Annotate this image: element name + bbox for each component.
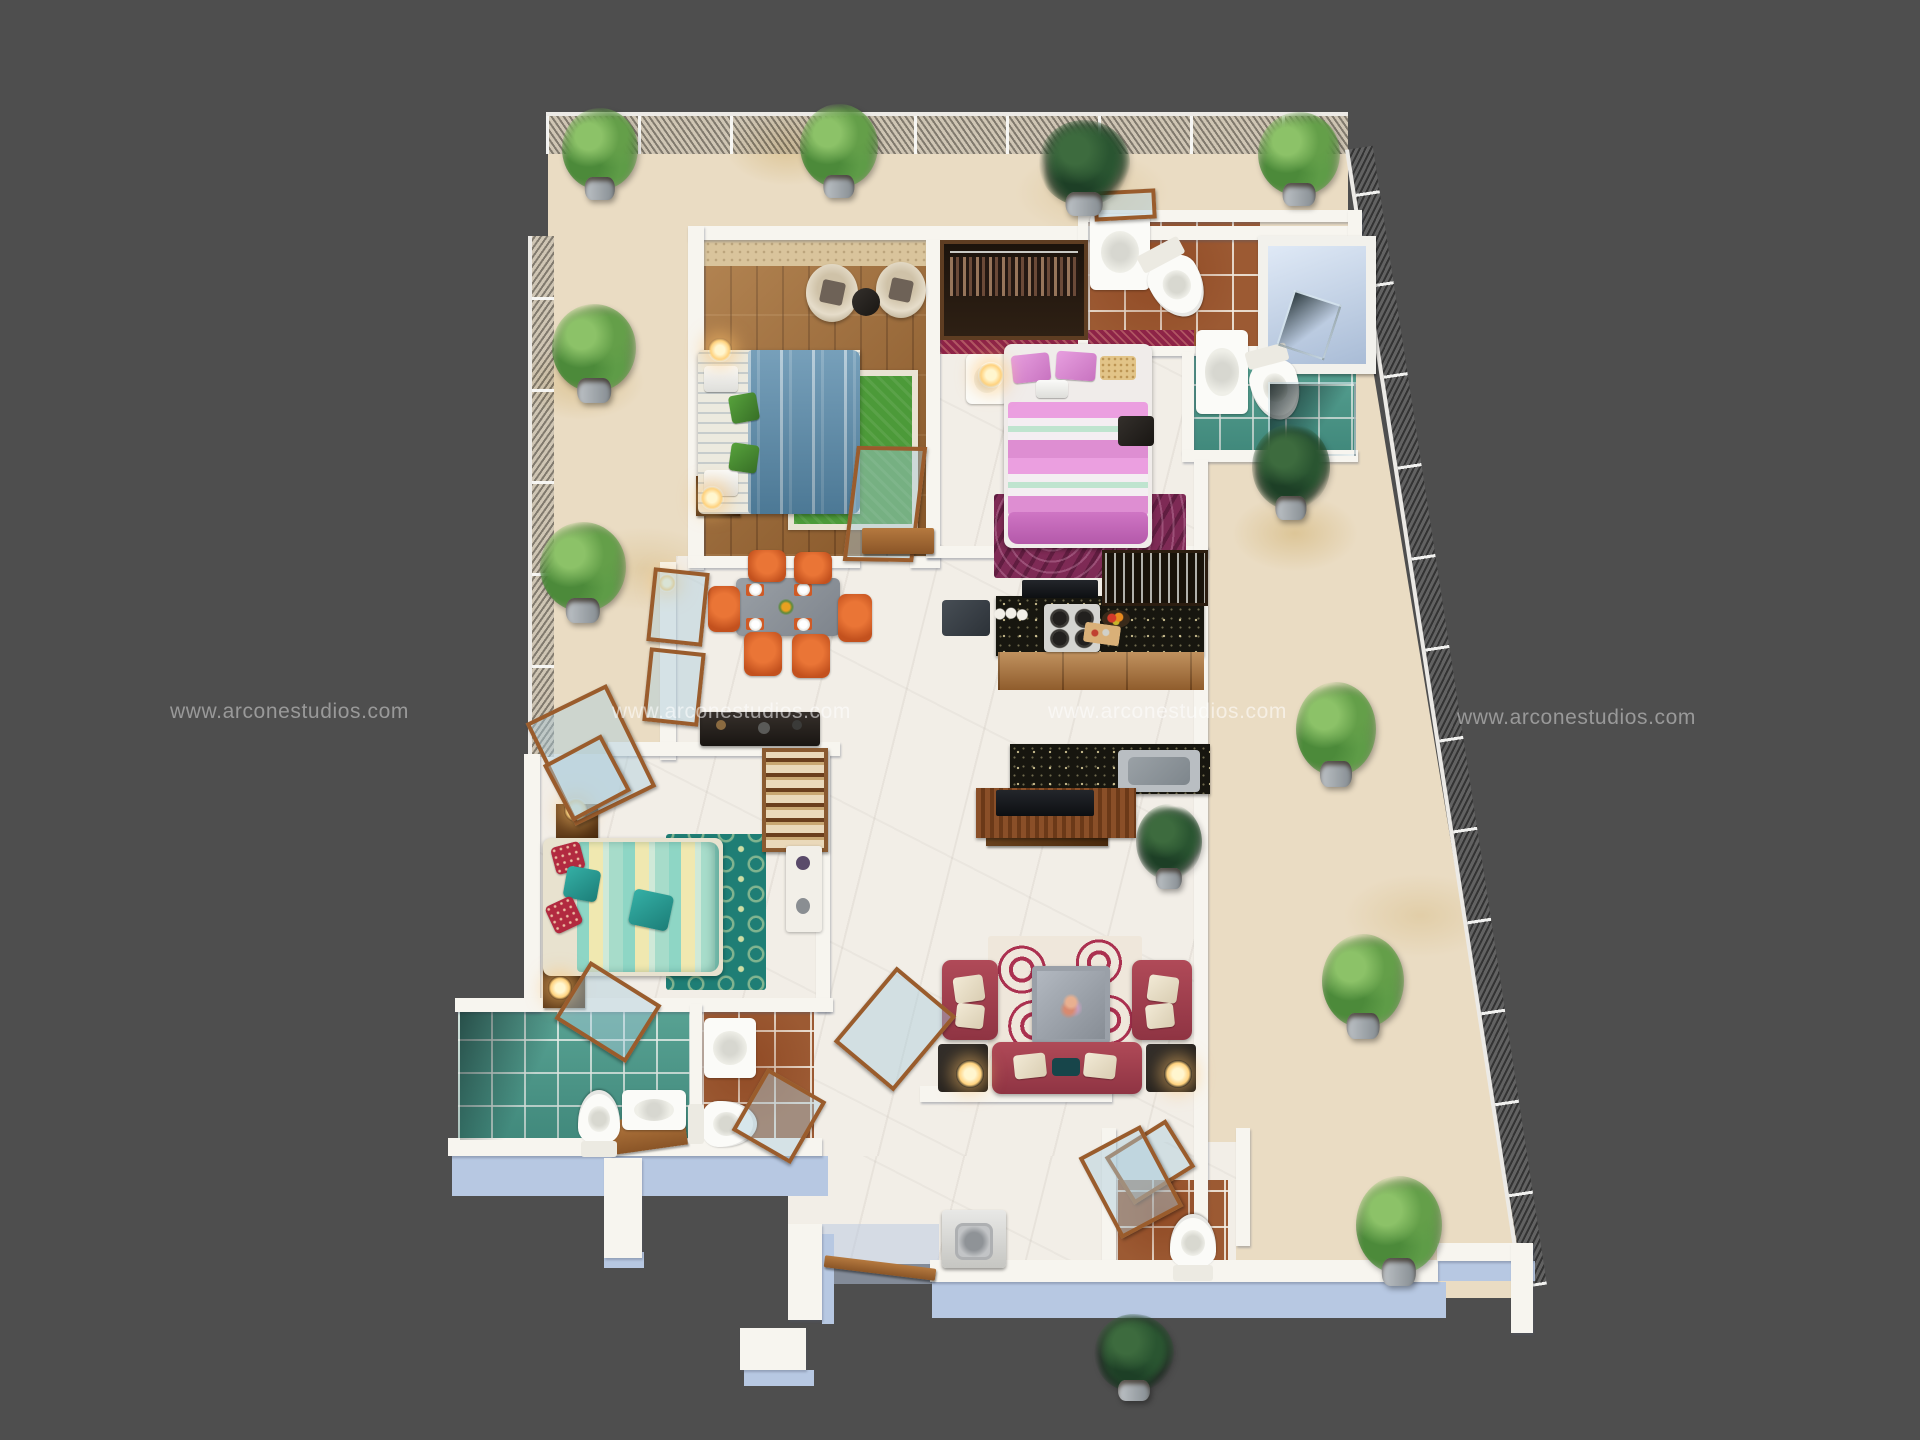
armchair [876,262,926,318]
wall-entry-pier1 [788,1224,822,1320]
watermark: www.arconestudios.com [1457,706,1696,730]
dish-rack [1102,550,1208,606]
master-bed [1004,344,1152,548]
potted-palm [1038,120,1130,206]
left-balcony-railing [528,236,554,760]
pink-pillow [1055,351,1097,382]
table-lamp [708,338,732,362]
sofa-cushion [1013,1052,1047,1079]
wall-pier [604,1158,642,1258]
desk-item [796,898,810,914]
watermark: www.arconestudios.com [1048,700,1287,724]
shadow-entry-pier2 [744,1370,814,1386]
potted-plant [1322,934,1404,1028]
sofa-cushion [1083,1052,1117,1079]
potted-plant [1094,1314,1174,1392]
wood-threshold [862,528,934,554]
kitchen-island-stool [942,600,990,636]
potted-plant [562,108,638,190]
sofa-three-seat [992,1042,1142,1094]
plate [749,583,762,596]
potted-plant [1252,424,1330,510]
shadow-bottom-outer [932,1282,1446,1318]
pillow [1036,380,1068,398]
shadow-entry-pier1 [822,1234,834,1324]
table-lamp [700,486,724,510]
dining-chair [748,550,786,582]
spice-jars [994,606,1028,622]
floor-plan-render: www.arconestudios.com www.arconestudios.… [0,0,1920,1440]
desk-item [796,856,810,870]
table-lamp [956,1060,984,1088]
armchair [806,264,858,322]
wall-corner-br-v [1511,1243,1533,1333]
coffee-table [1032,966,1110,1044]
dining-table [736,578,840,636]
potted-plant [1356,1176,1442,1274]
bathroom1-vanity [1090,214,1150,290]
pink-blanket-fold [1008,512,1148,544]
sofa-single [1132,960,1192,1040]
bedroom2-wardrobe [762,748,828,852]
master-wardrobe [940,240,1088,340]
bedroom2-bed [543,838,723,976]
gold-pillow [1100,356,1136,380]
top-terrace-railing [546,112,1348,154]
bathroom3-sink [622,1090,686,1130]
plate [797,583,810,596]
potted-plant [800,104,878,188]
potted-plant [540,522,626,612]
potted-plant [1136,804,1202,880]
dining-chair [794,552,832,584]
sofa-cushion [1145,1003,1175,1030]
pillow [704,366,738,392]
sofa-single [942,960,998,1040]
watermark: www.arconestudios.com [170,700,409,724]
potted-plant [1296,682,1376,776]
wall-bathroom5-right [1236,1128,1250,1246]
blue-duvet [748,350,860,514]
shower-glass-shadow [460,1012,590,1140]
bedroom2-desk [786,846,822,932]
potted-plant [552,304,636,392]
sofa-cushion [955,1003,985,1030]
bedroom1-bed [698,350,860,514]
wall-top [688,226,1353,240]
dining-window [646,567,709,646]
ottoman [1118,416,1154,446]
potted-plant [1258,112,1340,196]
dining-chair [838,594,872,642]
kitchen-hood [1022,580,1098,598]
sofa-cushion [1146,974,1179,1004]
sofa-cushion [952,974,985,1004]
green-pillow [728,442,760,474]
centerpiece-flowers [778,599,794,615]
green-pillow [728,392,760,424]
washing-machine [942,1210,1006,1268]
plate [797,618,810,631]
kitchen-cabinets [998,652,1204,690]
plate [749,618,762,631]
bathroom2-vanity [1196,330,1248,414]
bathroom4-vanity [704,1018,756,1078]
dining-chair [708,586,740,632]
round-side-table [852,288,880,316]
wall-bath2-left [1182,352,1194,454]
wall-bedroom2-left [524,754,540,1012]
table-lamp [978,362,1004,388]
teal-sofa-pillow [1052,1058,1080,1076]
dining-chair [744,632,782,676]
television [996,790,1094,816]
watermark: www.arconestudios.com [612,700,851,724]
wall-entry-pier2 [740,1328,806,1370]
utility-sink [1118,750,1200,792]
dining-chair [792,634,830,678]
wall-bedroom1-master [926,240,940,558]
table-lamp [1164,1060,1192,1088]
